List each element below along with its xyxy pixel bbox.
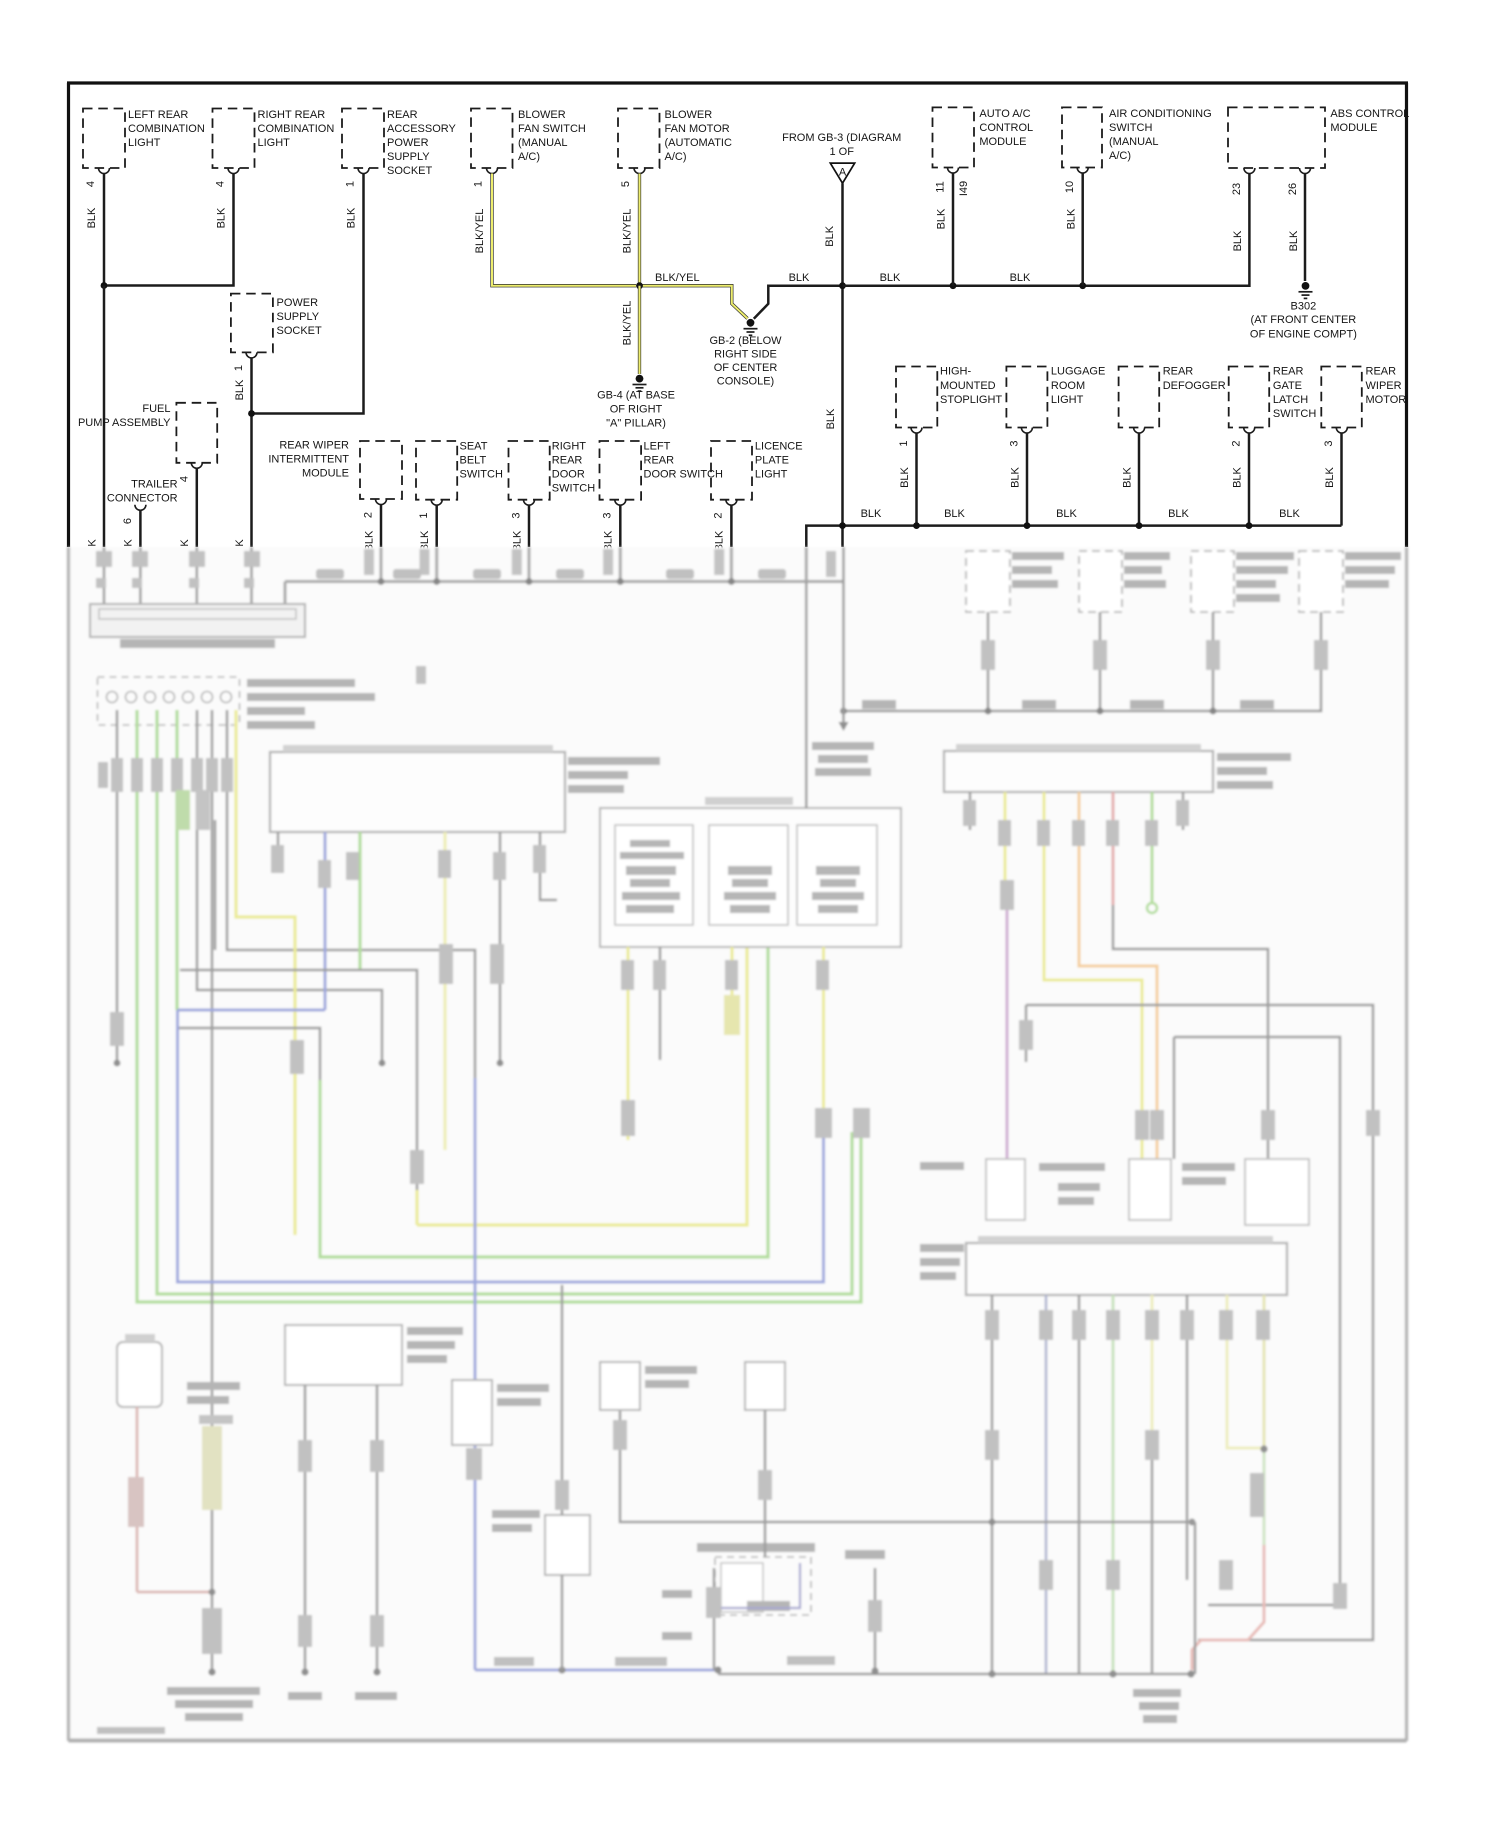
svg-text:(AUTOMATIC: (AUTOMATIC bbox=[665, 137, 732, 149]
svg-text:SWITCH: SWITCH bbox=[1109, 122, 1152, 134]
svg-text:BLK: BLK bbox=[86, 207, 98, 228]
svg-text:BLK: BLK bbox=[1231, 466, 1243, 487]
svg-text:WIPER: WIPER bbox=[1366, 380, 1402, 392]
svg-text:REAR: REAR bbox=[1163, 366, 1194, 378]
svg-text:BLK: BLK bbox=[1288, 230, 1300, 251]
svg-text:CONTROL: CONTROL bbox=[979, 122, 1033, 134]
svg-text:LUGGAGE: LUGGAGE bbox=[1051, 366, 1105, 378]
svg-text:ABS CONTROL: ABS CONTROL bbox=[1330, 108, 1409, 120]
svg-text:MODULE: MODULE bbox=[302, 467, 349, 479]
svg-text:K: K bbox=[123, 539, 135, 547]
svg-text:BLK: BLK bbox=[234, 379, 246, 400]
svg-text:3: 3 bbox=[1323, 440, 1335, 446]
svg-text:A: A bbox=[839, 167, 847, 179]
svg-text:BLK: BLK bbox=[899, 466, 911, 487]
svg-text:OF RIGHT: OF RIGHT bbox=[610, 403, 663, 415]
svg-text:ACCESSORY: ACCESSORY bbox=[387, 123, 457, 135]
svg-text:RIGHT: RIGHT bbox=[552, 440, 587, 452]
svg-text:BLK: BLK bbox=[861, 508, 882, 520]
svg-text:FAN SWITCH: FAN SWITCH bbox=[518, 123, 586, 135]
svg-text:CONNECTOR: CONNECTOR bbox=[107, 493, 178, 505]
svg-text:(AT FRONT CENTER: (AT FRONT CENTER bbox=[1251, 314, 1357, 326]
svg-text:HIGH-: HIGH- bbox=[940, 366, 972, 378]
svg-text:REAR WIPER: REAR WIPER bbox=[279, 439, 349, 451]
svg-text:REAR: REAR bbox=[552, 454, 583, 466]
svg-text:BLK: BLK bbox=[825, 408, 837, 429]
svg-text:3: 3 bbox=[1008, 440, 1020, 446]
svg-text:3: 3 bbox=[510, 512, 522, 518]
svg-text:K: K bbox=[87, 539, 99, 547]
svg-text:DOOR: DOOR bbox=[552, 468, 585, 480]
svg-text:MOUNTED: MOUNTED bbox=[940, 380, 996, 392]
svg-text:SEAT: SEAT bbox=[460, 440, 488, 452]
svg-text:LATCH: LATCH bbox=[1273, 394, 1308, 406]
svg-text:SWITCH: SWITCH bbox=[1273, 408, 1316, 420]
svg-text:BLK: BLK bbox=[824, 225, 836, 246]
svg-text:OF CENTER: OF CENTER bbox=[714, 362, 778, 374]
svg-text:I49: I49 bbox=[958, 181, 970, 196]
svg-text:BLK: BLK bbox=[789, 272, 810, 284]
svg-text:6: 6 bbox=[122, 518, 134, 524]
svg-text:OF ENGINE COMPT): OF ENGINE COMPT) bbox=[1250, 329, 1357, 341]
svg-text:LIGHT: LIGHT bbox=[755, 468, 788, 480]
svg-text:BLK: BLK bbox=[1010, 272, 1031, 284]
svg-text:BLK: BLK bbox=[880, 272, 901, 284]
svg-text:26: 26 bbox=[1287, 183, 1299, 195]
svg-text:2: 2 bbox=[1230, 440, 1242, 446]
svg-text:4: 4 bbox=[178, 476, 190, 482]
svg-text:BLK: BLK bbox=[1279, 508, 1300, 520]
svg-text:(MANUAL: (MANUAL bbox=[1109, 136, 1159, 148]
svg-text:LICENCE: LICENCE bbox=[755, 440, 803, 452]
svg-text:POWER: POWER bbox=[277, 297, 319, 309]
svg-text:BLK/YEL: BLK/YEL bbox=[474, 209, 486, 254]
svg-text:AUTO A/C: AUTO A/C bbox=[979, 108, 1030, 120]
svg-text:SOCKET: SOCKET bbox=[277, 325, 323, 337]
svg-text:BLK/YEL: BLK/YEL bbox=[622, 301, 634, 346]
svg-text:SWITCH: SWITCH bbox=[460, 468, 503, 480]
svg-text:5: 5 bbox=[620, 181, 632, 187]
svg-text:FUEL: FUEL bbox=[142, 403, 170, 415]
svg-text:1 OF: 1 OF bbox=[829, 146, 854, 158]
svg-text:SUPPLY: SUPPLY bbox=[277, 311, 320, 323]
svg-text:FROM GB-3 (DIAGRAM: FROM GB-3 (DIAGRAM bbox=[782, 132, 901, 144]
svg-text:BLK: BLK bbox=[1121, 466, 1133, 487]
svg-text:BLOWER: BLOWER bbox=[665, 109, 713, 121]
svg-text:SOCKET: SOCKET bbox=[387, 165, 433, 177]
svg-text:BLK: BLK bbox=[1009, 466, 1021, 487]
svg-text:1: 1 bbox=[473, 181, 485, 187]
svg-text:2: 2 bbox=[713, 512, 725, 518]
svg-text:CONSOLE): CONSOLE) bbox=[717, 376, 774, 388]
svg-text:LIGHT: LIGHT bbox=[258, 137, 291, 149]
svg-text:POWER: POWER bbox=[387, 137, 429, 149]
svg-text:STOPLIGHT: STOPLIGHT bbox=[940, 394, 1002, 406]
svg-text:BLOWER: BLOWER bbox=[518, 109, 566, 121]
svg-text:23: 23 bbox=[1231, 183, 1243, 195]
svg-text:(MANUAL: (MANUAL bbox=[518, 137, 568, 149]
svg-text:RIGHT REAR: RIGHT REAR bbox=[258, 109, 326, 121]
svg-text:GB-4 (AT BASE: GB-4 (AT BASE bbox=[597, 389, 675, 401]
svg-text:MODULE: MODULE bbox=[979, 136, 1026, 148]
svg-text:4: 4 bbox=[215, 181, 227, 187]
svg-text:MOTOR: MOTOR bbox=[1366, 394, 1407, 406]
svg-text:BELT: BELT bbox=[460, 454, 487, 466]
svg-text:BLK/YEL: BLK/YEL bbox=[622, 209, 634, 254]
svg-text:4: 4 bbox=[85, 181, 97, 187]
svg-text:MODULE: MODULE bbox=[1330, 122, 1377, 134]
svg-text:INTERMITTENT: INTERMITTENT bbox=[268, 453, 349, 465]
svg-text:B302: B302 bbox=[1291, 300, 1317, 312]
svg-text:A/C): A/C) bbox=[665, 151, 687, 163]
svg-text:11: 11 bbox=[934, 181, 946, 192]
svg-text:RIGHT SIDE: RIGHT SIDE bbox=[714, 349, 777, 361]
svg-text:PLATE: PLATE bbox=[755, 454, 789, 466]
svg-text:TRAILER: TRAILER bbox=[131, 479, 178, 491]
svg-text:1: 1 bbox=[233, 365, 245, 371]
svg-text:LEFT REAR: LEFT REAR bbox=[128, 109, 188, 121]
svg-text:BLK: BLK bbox=[1168, 508, 1189, 520]
svg-text:DEFOGGER: DEFOGGER bbox=[1163, 380, 1226, 392]
svg-text:3: 3 bbox=[602, 512, 614, 518]
svg-text:A/C): A/C) bbox=[518, 151, 540, 163]
svg-text:1: 1 bbox=[418, 512, 430, 518]
svg-text:REAR: REAR bbox=[644, 454, 675, 466]
svg-text:BLK: BLK bbox=[944, 508, 965, 520]
svg-text:BLK/YEL: BLK/YEL bbox=[655, 272, 700, 284]
svg-text:LIGHT: LIGHT bbox=[128, 137, 161, 149]
svg-text:10: 10 bbox=[1064, 181, 1076, 193]
svg-text:SWITCH: SWITCH bbox=[552, 482, 595, 494]
svg-text:BLK: BLK bbox=[936, 208, 948, 229]
svg-text:COMBINATION: COMBINATION bbox=[128, 123, 205, 135]
svg-text:BLK: BLK bbox=[1232, 230, 1244, 251]
svg-text:GATE: GATE bbox=[1273, 380, 1302, 392]
svg-text:REAR: REAR bbox=[1366, 366, 1397, 378]
svg-text:BLK: BLK bbox=[346, 207, 358, 228]
svg-text:K: K bbox=[234, 539, 246, 547]
svg-text:LIGHT: LIGHT bbox=[1051, 394, 1084, 406]
svg-text:SUPPLY: SUPPLY bbox=[387, 151, 430, 163]
svg-text:REAR: REAR bbox=[1273, 366, 1304, 378]
svg-text:REAR: REAR bbox=[387, 109, 418, 121]
svg-text:AIR CONDITIONING: AIR CONDITIONING bbox=[1109, 108, 1212, 120]
svg-text:LEFT: LEFT bbox=[644, 440, 671, 452]
svg-text:ROOM: ROOM bbox=[1051, 380, 1085, 392]
svg-text:BLK: BLK bbox=[1056, 508, 1077, 520]
svg-text:A/C): A/C) bbox=[1109, 150, 1131, 162]
svg-text:1: 1 bbox=[898, 440, 910, 446]
svg-text:K: K bbox=[179, 539, 191, 547]
svg-text:BLK: BLK bbox=[1066, 208, 1078, 229]
svg-text:GB-2 (BELOW: GB-2 (BELOW bbox=[709, 335, 782, 347]
svg-text:BLK: BLK bbox=[216, 207, 228, 228]
svg-text:"A" PILLAR): "A" PILLAR) bbox=[606, 417, 666, 429]
svg-text:COMBINATION: COMBINATION bbox=[258, 123, 335, 135]
svg-text:PUMP ASSEMBLY: PUMP ASSEMBLY bbox=[78, 417, 171, 429]
svg-text:FAN MOTOR: FAN MOTOR bbox=[665, 123, 730, 135]
svg-text:BLK: BLK bbox=[1324, 466, 1336, 487]
svg-text:2: 2 bbox=[363, 512, 375, 518]
svg-text:1: 1 bbox=[345, 181, 357, 187]
